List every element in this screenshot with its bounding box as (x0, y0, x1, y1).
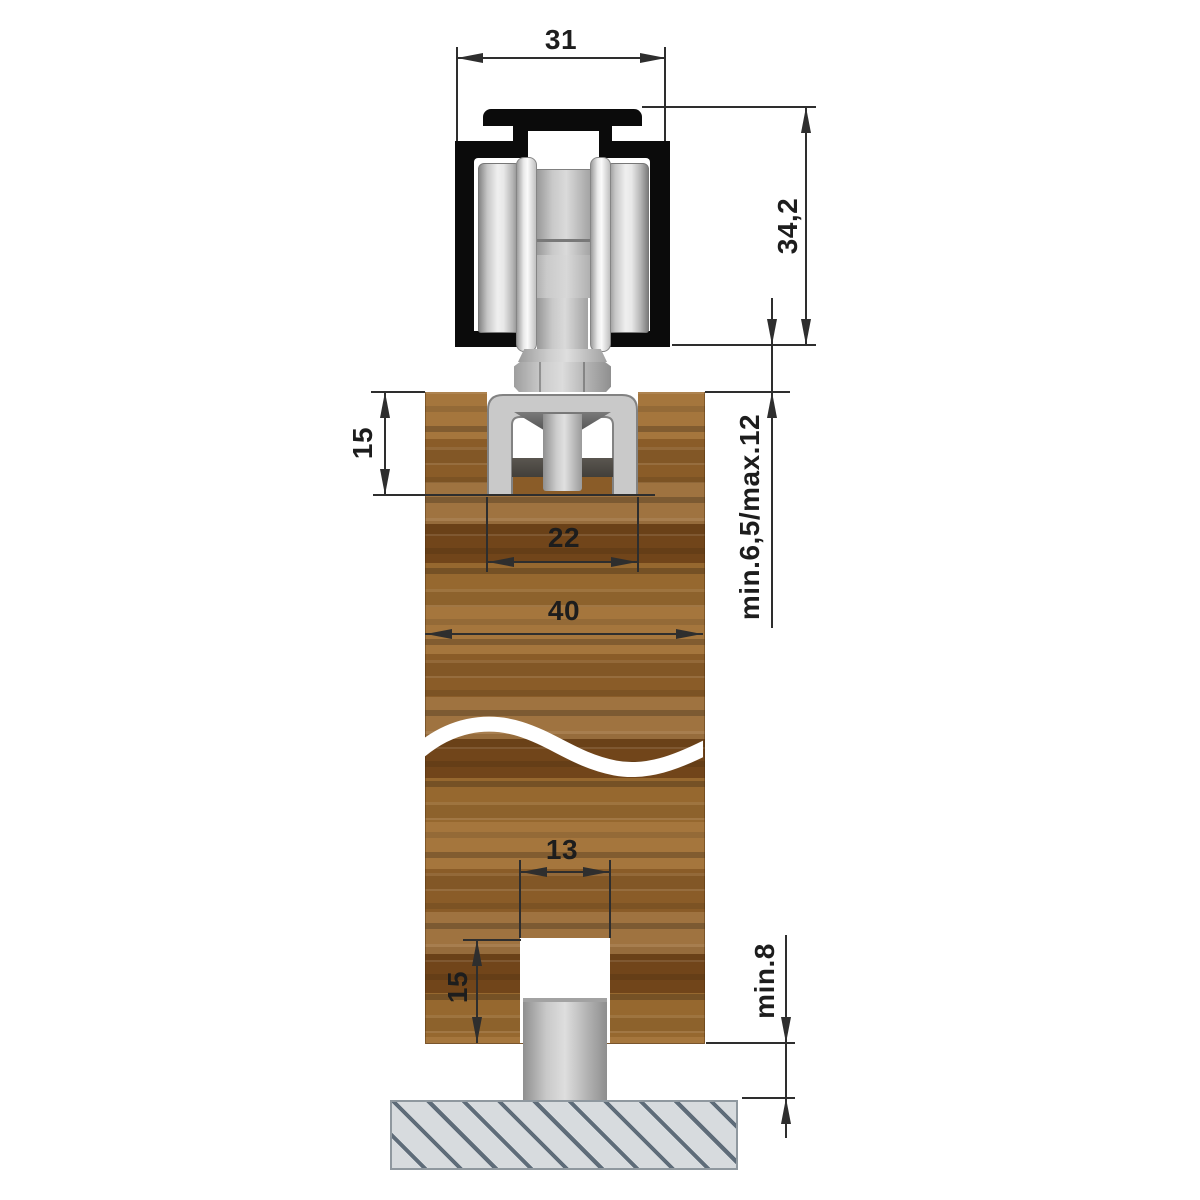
dim-arrow (611, 557, 637, 567)
track-neck-hollow (528, 131, 599, 158)
wheel-flange-left (516, 157, 537, 352)
dim-arrow (521, 867, 547, 877)
dim-arrow (781, 1017, 791, 1043)
dim-assembly-height-line (805, 107, 807, 345)
hanger-washer (518, 349, 607, 362)
dim-arrow (488, 557, 514, 567)
roller-body (535, 169, 592, 257)
dim-track-width-line (457, 57, 666, 59)
dim-assembly-height-ext-bottom (672, 344, 816, 346)
dim-arrow (457, 53, 483, 63)
dim-arrow (583, 867, 609, 877)
dim-arrow (676, 629, 702, 639)
dim-groove-depth-label: 15 (442, 971, 474, 1003)
dim-arrow (781, 1098, 791, 1124)
dim-arrow (767, 319, 777, 345)
dim-recess-ext-bottom (373, 494, 655, 496)
dim-fitting-width-label: 22 (548, 522, 580, 554)
dim-floor-gap-label: min.8 (749, 943, 781, 1019)
dim-recess-depth-label: 15 (347, 427, 379, 459)
dim-arrow (380, 392, 390, 418)
dim-arrow (472, 940, 482, 966)
floor-guide-pin (523, 998, 607, 1104)
hanger-bolt (543, 414, 582, 491)
roller-wheel-right (606, 163, 649, 333)
dim-door-thickness-label: 40 (548, 595, 580, 627)
roller-body-seam (536, 239, 591, 242)
dim-assembly-height-label: 34,2 (772, 198, 804, 255)
dim-gap-line (771, 298, 773, 628)
dim-gap-ext-door-top (705, 391, 790, 393)
dim-groove-width-label: 13 (546, 834, 578, 866)
roller-wheel-left (478, 163, 521, 333)
floor-slab (390, 1100, 738, 1170)
dim-arrow (801, 319, 811, 345)
dim-assembly-height-ext-top (642, 106, 816, 108)
dim-arrow (472, 1017, 482, 1043)
dim-arrow (767, 392, 777, 418)
hanger-shaft (537, 298, 588, 350)
dim-arrow (426, 629, 452, 639)
dim-track-width-label: 31 (545, 24, 577, 56)
break-line-wave (425, 700, 703, 800)
dim-arrow (801, 107, 811, 133)
dim-gap-label: min.6,5/max.12 (734, 414, 766, 620)
dim-arrow (380, 469, 390, 495)
dim-arrow (640, 53, 666, 63)
technical-drawing: 31 34,2 min.6,5/max.12 15 22 40 13 15 mi… (0, 0, 1200, 1200)
wheel-flange-right (590, 157, 611, 352)
hanger-hex-nut (514, 362, 611, 393)
dim-door-thickness-line (425, 633, 703, 635)
